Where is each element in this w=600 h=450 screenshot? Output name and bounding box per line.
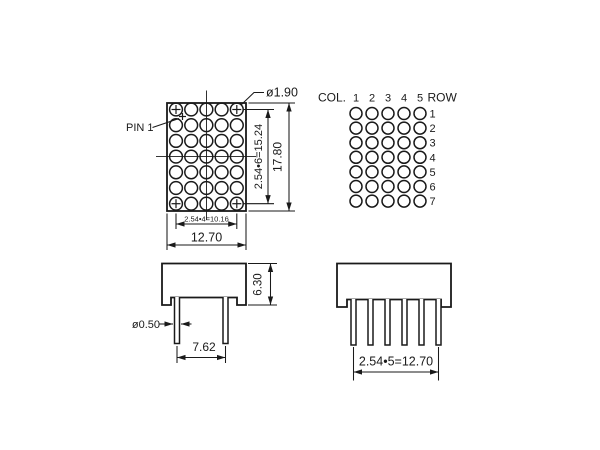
row-header-label: ROW: [428, 91, 458, 105]
dimension-pin-row-span: 2.54•5=12.70: [354, 347, 439, 381]
row-number: 1: [430, 109, 436, 121]
led-dot: [382, 137, 394, 149]
led-dot: [350, 108, 362, 120]
body-width-value: 12.70: [191, 231, 222, 245]
led-dot: [170, 166, 183, 179]
lead-pin: [419, 299, 424, 345]
led-dot: [215, 166, 228, 179]
led-dot: [398, 181, 410, 193]
led-dot: [350, 137, 362, 149]
pin-map-view: COL. 1 2 3 4 5 ROW 1 2 3 4 5 6 7: [318, 91, 458, 209]
led-dot: [350, 181, 362, 193]
led-dot: [366, 151, 378, 163]
led-dot: [398, 151, 410, 163]
led-dot: [230, 166, 243, 179]
led-dot: [414, 151, 426, 163]
led-dot: [185, 135, 198, 148]
led-dot: [382, 151, 394, 163]
led-dot: [350, 151, 362, 163]
lead-pin: [436, 299, 441, 345]
col-number: 4: [401, 93, 407, 105]
led-dot: [185, 166, 198, 179]
led-dot: [215, 135, 228, 148]
bottom-view: 2.54•5=12.70: [337, 264, 451, 381]
lead-pin: [385, 299, 390, 345]
led-dot: [398, 166, 410, 178]
lead-pin: [223, 297, 228, 344]
dot-diameter-label: ø1.90: [266, 86, 298, 100]
led-dot: [366, 122, 378, 134]
led-dot: [185, 103, 198, 116]
pin1-label: PIN 1: [126, 122, 154, 134]
col-number: 5: [417, 93, 423, 105]
pin-diameter-value: ø0.50: [132, 319, 160, 331]
dot-matrix-package-drawing: PIN 1 ø1.90 2.54•6=15.24 17.80 2.54•4=10…: [0, 0, 600, 450]
led-dot: [382, 166, 394, 178]
led-dot: [366, 181, 378, 193]
led-dot: [215, 197, 228, 210]
led-dot: [230, 135, 243, 148]
pin-map-dot-grid: [350, 108, 426, 208]
side-view: 6.30 ø0.50 7.62: [132, 264, 277, 364]
led-dot: [215, 103, 228, 116]
led-dot: [230, 119, 243, 132]
lead-pin: [351, 299, 356, 345]
body-height-value: 17.80: [271, 142, 285, 172]
led-dot: [414, 137, 426, 149]
col-number: 2: [369, 93, 375, 105]
front-view: PIN 1 ø1.90 2.54•6=15.24 17.80 2.54•4=10…: [126, 86, 298, 251]
led-dot: [215, 182, 228, 195]
led-dot: [414, 108, 426, 120]
dimension-pin-spacing: 7.62: [177, 340, 226, 363]
row-number: 7: [430, 196, 436, 208]
pin1-leader-line: [153, 119, 180, 128]
pin-row-span-value: 2.54•5=12.70: [359, 355, 433, 369]
led-dot: [398, 137, 410, 149]
led-dot: [382, 181, 394, 193]
led-dot: [366, 108, 378, 120]
row-number: 3: [430, 138, 436, 150]
led-dot: [414, 166, 426, 178]
led-dot: [414, 122, 426, 134]
led-dot: [382, 108, 394, 120]
lead-pin: [402, 299, 407, 345]
row-pitch-value: 2.54•6=15.24: [253, 124, 265, 189]
pin-spacing-value: 7.62: [192, 340, 216, 354]
led-dot: [414, 195, 426, 207]
led-dot: [350, 122, 362, 134]
led-dot: [350, 195, 362, 207]
row-number: 2: [430, 123, 436, 135]
lead-pin: [175, 297, 180, 344]
led-dot: [366, 137, 378, 149]
led-dot: [185, 119, 198, 132]
led-dot: [366, 166, 378, 178]
col-number: 1: [353, 93, 359, 105]
led-dot: [170, 135, 183, 148]
body-depth-value: 6.30: [253, 273, 265, 295]
led-dot: [398, 195, 410, 207]
row-number: 6: [430, 182, 436, 194]
led-dot: [366, 195, 378, 207]
led-dot: [382, 195, 394, 207]
dimension-body-depth: 6.30: [248, 264, 277, 306]
lead-pin: [368, 299, 373, 345]
led-dot: [170, 182, 183, 195]
led-dot: [215, 119, 228, 132]
col-number: 3: [385, 93, 391, 105]
col-pitch-value: 2.54•4=10.16: [184, 215, 229, 224]
drawing-canvas: PIN 1 ø1.90 2.54•6=15.24 17.80 2.54•4=10…: [0, 0, 600, 450]
led-dot: [398, 122, 410, 134]
led-dot: [382, 122, 394, 134]
row-number: 5: [430, 167, 436, 179]
led-dot: [185, 182, 198, 195]
col-header-label: COL.: [318, 91, 346, 105]
dimension-pin-diameter: ø0.50: [132, 319, 192, 331]
dimension-col-pitch: 2.54•4=10.16: [176, 214, 237, 230]
led-dot: [230, 182, 243, 195]
row-number: 4: [430, 152, 436, 164]
led-dot: [185, 197, 198, 210]
led-dot: [398, 108, 410, 120]
led-dot: [414, 181, 426, 193]
led-dot: [350, 166, 362, 178]
